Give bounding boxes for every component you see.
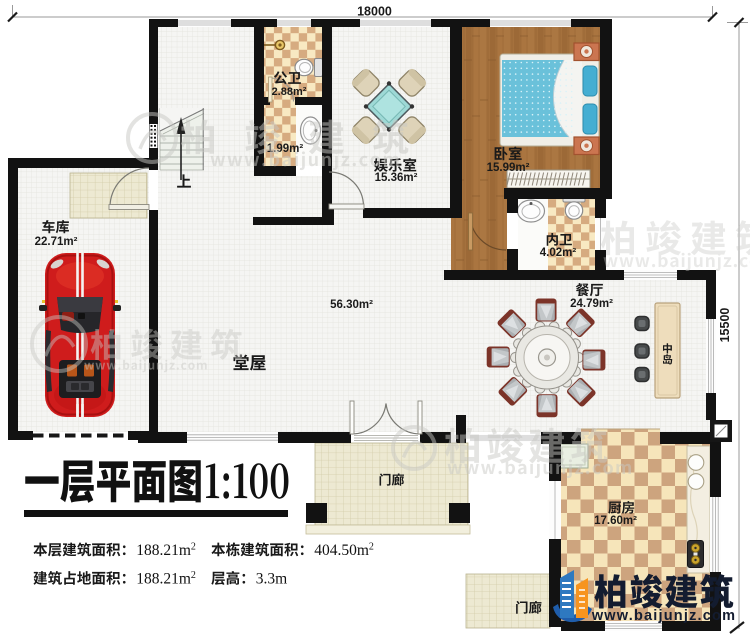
svg-text:4.02m²: 4.02m² bbox=[540, 247, 577, 259]
svg-text:24.79m²: 24.79m² bbox=[570, 298, 613, 310]
svg-text:www.baijunjz.com: www.baijunjz.com bbox=[591, 608, 736, 624]
svg-text:2.88m²: 2.88m² bbox=[272, 86, 307, 98]
svg-text:15.36m²: 15.36m² bbox=[375, 172, 418, 184]
svg-text:15500: 15500 bbox=[718, 308, 732, 343]
svg-text:15.99m²: 15.99m² bbox=[487, 162, 530, 174]
svg-text:188.21m2: 188.21m2 bbox=[136, 570, 196, 588]
svg-text:22.71m²: 22.71m² bbox=[35, 236, 78, 248]
svg-text:404.50m2: 404.50m2 bbox=[314, 542, 374, 560]
svg-text:3.3m: 3.3m bbox=[256, 571, 287, 588]
svg-text:18000: 18000 bbox=[357, 5, 392, 19]
svg-text:17.60m²: 17.60m² bbox=[594, 515, 637, 527]
svg-text:56.30m²: 56.30m² bbox=[330, 299, 373, 311]
svg-text:188.21m2: 188.21m2 bbox=[136, 542, 196, 560]
